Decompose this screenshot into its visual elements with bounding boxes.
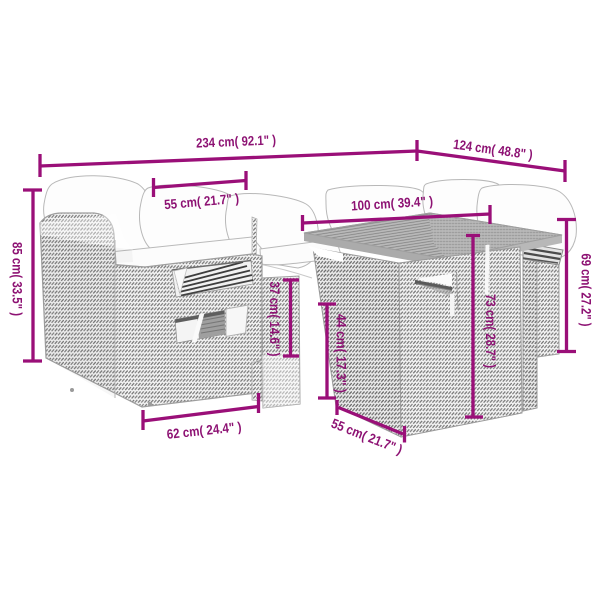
svg-text:85 cm( 33.5" ): 85 cm( 33.5" ) bbox=[10, 242, 25, 316]
svg-text:44 cm( 17.3" ): 44 cm( 17.3" ) bbox=[334, 314, 349, 393]
svg-text:37 cm( 14.6" ): 37 cm( 14.6" ) bbox=[267, 282, 282, 357]
svg-text:69 cm( 27.2" ): 69 cm( 27.2" ) bbox=[579, 254, 594, 327]
svg-text:73 cm( 28.7" ): 73 cm( 28.7" ) bbox=[483, 294, 498, 368]
